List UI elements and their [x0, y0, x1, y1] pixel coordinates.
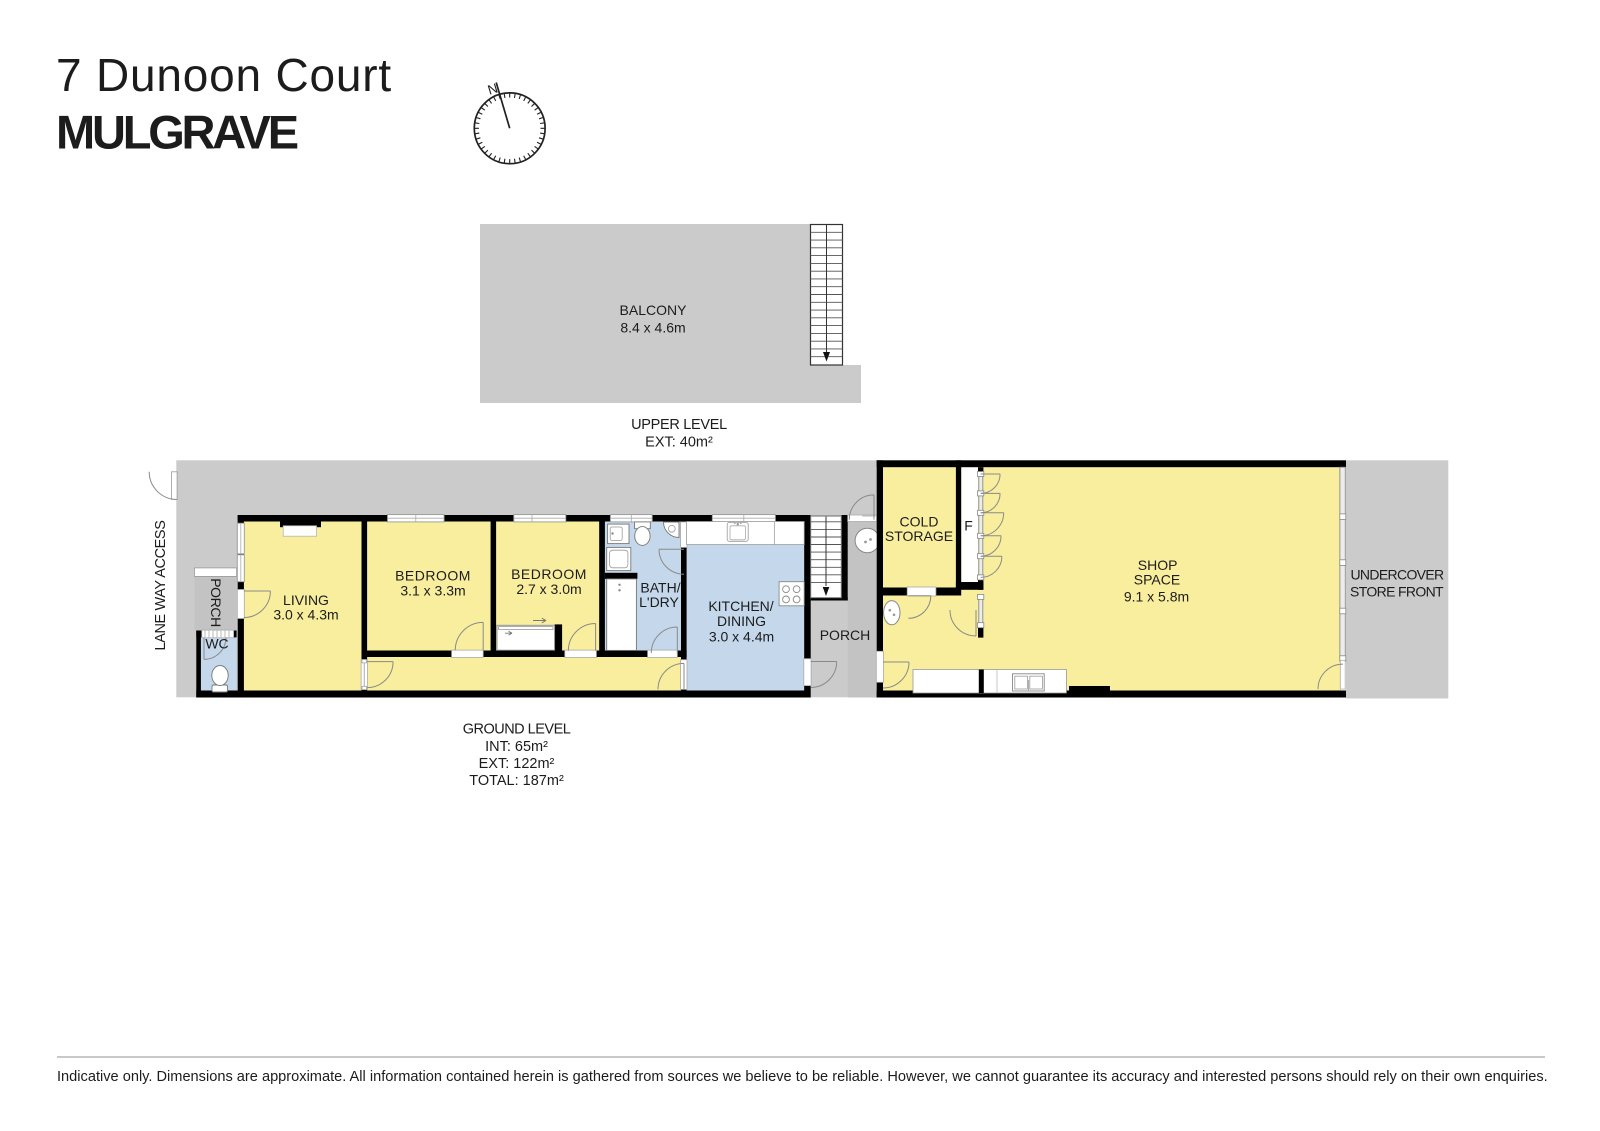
svg-text:PORCH: PORCH	[820, 627, 871, 643]
svg-text:N: N	[486, 81, 500, 98]
svg-text:EXT: 122m²: EXT: 122m²	[479, 756, 555, 772]
svg-text:BEDROOM: BEDROOM	[511, 566, 587, 582]
svg-text:WC: WC	[205, 636, 228, 652]
svg-text:EXT: 40m²: EXT: 40m²	[645, 435, 713, 451]
svg-text:3.0 x 4.4m: 3.0 x 4.4m	[709, 629, 774, 645]
svg-text:UNDERCOVER: UNDERCOVER	[1350, 567, 1444, 583]
svg-text:BALCONY: BALCONY	[620, 302, 688, 318]
svg-text:F: F	[964, 518, 973, 534]
svg-text:3.0 x 4.3m: 3.0 x 4.3m	[273, 607, 338, 623]
svg-text:TOTAL: 187m²: TOTAL: 187m²	[469, 773, 564, 789]
svg-text:STORAGE: STORAGE	[885, 528, 953, 544]
svg-text:DINING: DINING	[717, 613, 766, 629]
svg-text:GROUND LEVEL: GROUND LEVEL	[463, 722, 571, 738]
svg-text:8.4 x 4.6m: 8.4 x 4.6m	[620, 320, 685, 336]
svg-text:2.7 x 3.0m: 2.7 x 3.0m	[516, 581, 581, 597]
svg-text:LANE WAY ACCESS: LANE WAY ACCESS	[153, 521, 169, 651]
svg-text:SPACE: SPACE	[1134, 572, 1180, 588]
svg-text:L'DRY: L'DRY	[639, 594, 679, 610]
svg-text:7 Dunoon Court: 7 Dunoon Court	[56, 49, 392, 101]
svg-text:PORCH: PORCH	[208, 578, 224, 627]
svg-text:UPPER LEVEL: UPPER LEVEL	[631, 417, 727, 433]
svg-text:BEDROOM: BEDROOM	[395, 568, 471, 584]
svg-text:MULGRAVE: MULGRAVE	[56, 106, 298, 159]
svg-text:3.1 x 3.3m: 3.1 x 3.3m	[400, 583, 465, 599]
svg-text:STORE FRONT: STORE FRONT	[1350, 584, 1444, 600]
svg-text:Indicative only. Dimensions ar: Indicative only. Dimensions are approxim…	[57, 1069, 1548, 1085]
svg-text:9.1 x 5.8m: 9.1 x 5.8m	[1124, 589, 1189, 605]
svg-text:INT: 65m²: INT: 65m²	[485, 739, 548, 755]
svg-text:KITCHEN/: KITCHEN/	[708, 598, 773, 614]
